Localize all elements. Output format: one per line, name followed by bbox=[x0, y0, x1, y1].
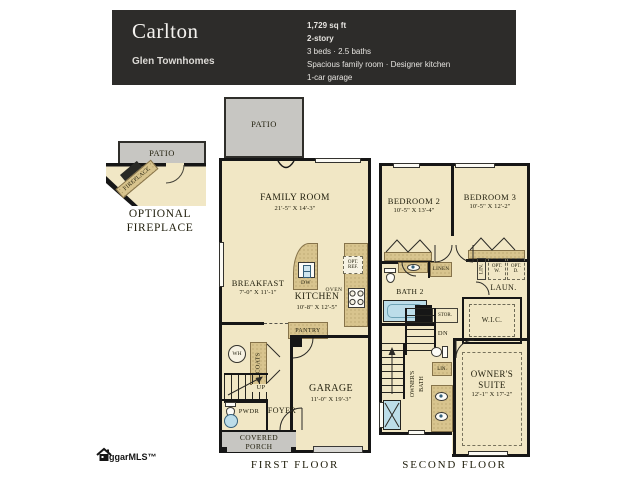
garage-door bbox=[313, 446, 363, 453]
window bbox=[455, 163, 495, 168]
bedroom3-dims: 10'-5" X 12'-2" bbox=[458, 203, 522, 211]
suite-wall bbox=[453, 338, 527, 341]
sink-fixture bbox=[224, 414, 238, 428]
second-floor-plan: BEDROOM 2 10'-5" X 13'-4" BEDROOM 3 10'-… bbox=[379, 163, 530, 457]
inset-patio: PATIO bbox=[118, 141, 206, 165]
spec-story: 2-story bbox=[307, 32, 450, 45]
shower-fixture bbox=[383, 400, 401, 430]
window bbox=[219, 242, 224, 287]
dw-label: DW bbox=[294, 280, 318, 286]
hall-linen-label: LIN. bbox=[477, 259, 487, 280]
spec-garage: 1-car garage bbox=[307, 71, 450, 84]
first-floor-caption: FIRST FLOOR bbox=[219, 459, 371, 471]
sink-fixture bbox=[435, 392, 448, 401]
bedroom-divider-wall bbox=[451, 166, 454, 236]
patio-label: PATIO bbox=[226, 119, 302, 129]
window bbox=[393, 163, 420, 168]
window bbox=[408, 430, 425, 435]
first-floor-plan: FAMILY ROOM 21'-5" X 14'-3" DW OPT. REF.… bbox=[219, 158, 371, 453]
water-heater: WH bbox=[228, 345, 246, 363]
optional-washer: OPT. W. bbox=[488, 258, 506, 280]
exterior-notch bbox=[379, 432, 452, 461]
foyer-label: FOYER bbox=[264, 406, 300, 415]
spec-sqft: 1,729 sq ft bbox=[307, 19, 450, 32]
toilet-fixture bbox=[386, 273, 395, 283]
garage-step bbox=[293, 338, 302, 347]
sink-fixture bbox=[407, 264, 420, 271]
kitchen-dims: 10'-8" X 12'-5" bbox=[288, 304, 346, 312]
family-room-dims: 21'-5" X 14'-3" bbox=[260, 205, 330, 213]
plan-title: Carlton bbox=[132, 19, 199, 44]
cased-opening bbox=[264, 323, 288, 324]
suite-wall bbox=[453, 338, 456, 454]
garage-dims: 11'-0" X 19'-3" bbox=[298, 396, 364, 404]
optional-dryer: OPT. D. bbox=[507, 258, 525, 280]
plan-specs: 1,729 sq ft 2-story 3 beds · 2.5 baths S… bbox=[307, 19, 450, 84]
up-label: UP bbox=[252, 384, 270, 392]
toilet-fixture bbox=[442, 346, 448, 358]
breakfast-label: BREAKFAST 7'-0" X 11'-1" bbox=[227, 278, 289, 297]
bedroom3-label: BEDROOM 3 10'-5" X 12'-2" bbox=[458, 192, 522, 211]
porch-post bbox=[222, 447, 227, 452]
toilet-fixture bbox=[431, 347, 442, 357]
floorplan-sheet: Carlton Glen Townhomes 1,729 sq ft 2-sto… bbox=[0, 0, 640, 480]
second-floor-caption: SECOND FLOOR bbox=[379, 459, 530, 471]
inset-caption: OPTIONAL FIREPLACE bbox=[104, 207, 216, 235]
spec-beds-baths: 3 beds · 2.5 baths bbox=[307, 45, 450, 58]
bath-linen: LIN. bbox=[432, 362, 452, 376]
dishwasher-fixture bbox=[298, 262, 315, 278]
community-name: Glen Townhomes bbox=[132, 56, 215, 67]
wic-label: W.I.C. bbox=[464, 316, 520, 324]
mls-logo: ggarMLS™ bbox=[96, 447, 157, 462]
optional-refrigerator: OPT. REF. bbox=[343, 256, 363, 274]
breakfast-dims: 7'-0" X 11'-1" bbox=[227, 289, 289, 297]
powder-label: PWDR bbox=[234, 408, 264, 416]
closet-shelf bbox=[384, 252, 432, 261]
bedroom2-dims: 10'-5" X 13'-4" bbox=[382, 207, 446, 215]
porch-label: COVERED PORCH bbox=[234, 434, 284, 451]
owners-suite-label: OWNER'S SUITE 12'-1" X 17'-2" bbox=[460, 369, 524, 399]
owners-bath-label: OWNER'S BATH bbox=[406, 367, 430, 401]
wall bbox=[222, 399, 268, 401]
walk-in-closet: W.I.C. bbox=[462, 297, 522, 344]
porch-post bbox=[291, 447, 296, 452]
linen-closet: LINEN bbox=[430, 262, 452, 277]
wall bbox=[266, 399, 268, 432]
sink-fixture bbox=[435, 412, 448, 421]
cooktop-fixture bbox=[348, 288, 365, 308]
stairs-lower bbox=[382, 343, 405, 399]
dw-control bbox=[303, 271, 311, 278]
tray-ceiling bbox=[462, 352, 522, 446]
wall bbox=[222, 322, 264, 325]
mls-logo-text: ggarMLS™ bbox=[109, 452, 157, 462]
owners-suite-dims: 12'-1" X 17'-2" bbox=[460, 391, 524, 399]
bath2-label: BATH 2 bbox=[390, 288, 430, 297]
kitchen-label: KITCHEN 10'-8" X 12'-5" bbox=[288, 292, 346, 312]
first-floor-patio: PATIO bbox=[224, 97, 304, 158]
garage-label: GARAGE 11'-0" X 19'-3" bbox=[298, 383, 364, 403]
dn-label: DN bbox=[434, 330, 452, 338]
plan-header: Carlton Glen Townhomes 1,729 sq ft 2-sto… bbox=[112, 10, 516, 85]
bedroom2-label: BEDROOM 2 10'-5" X 13'-4" bbox=[382, 196, 446, 215]
window bbox=[315, 158, 361, 163]
window bbox=[468, 451, 508, 456]
covered-porch: COVERED PORCH bbox=[222, 430, 296, 452]
laundry-label: LAUN. bbox=[482, 283, 525, 292]
family-room-label: FAMILY ROOM 21'-5" X 14'-3" bbox=[260, 193, 330, 213]
spec-features: Spacious family room · Designer kitchen bbox=[307, 58, 450, 71]
